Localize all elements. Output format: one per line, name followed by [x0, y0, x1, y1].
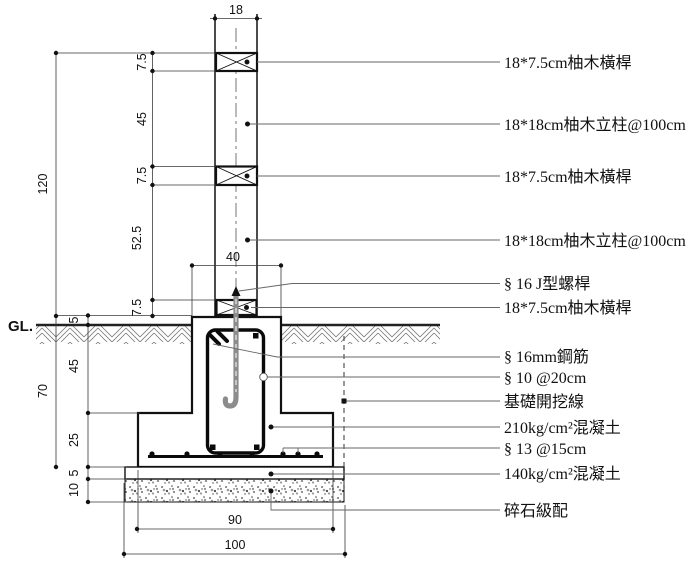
callout-labels: 18*7.5cm柚木橫桿 18*18cm柚木立柱@100cm 18*7.5cm柚… [504, 54, 686, 520]
callout-main-rebar: § 16mm鋼筋 [504, 348, 589, 366]
callout-concrete-140: 140kg/cm²混凝土 [504, 465, 621, 483]
ground-hatch-right [281, 326, 440, 344]
callout-stirrup: § 10 @20cm [504, 370, 587, 387]
callout-gravel: 碎石級配 [504, 502, 568, 520]
dim-rail-spacing-upper: 45 [135, 112, 149, 126]
callout-rail-top: 18*7.5cm柚木橫桿 [504, 54, 632, 72]
callout-post-lower: 18*18cm柚木立柱@100cm [504, 232, 686, 250]
dim-rail-top-h: 7.5 [135, 53, 149, 70]
gravel-layer [125, 479, 344, 502]
dim-lean-concrete-h: 5 [67, 469, 81, 476]
dim-total-above-gl: 120 [36, 174, 50, 195]
ground-level-label: GL. [8, 318, 33, 335]
callout-bottom-rebar: § 13 @15cm [504, 441, 587, 458]
dim-rail-spacing-lower: 52.5 [130, 226, 144, 250]
rebar-section-top-right [253, 333, 259, 339]
stirrup-leader-circle [260, 373, 268, 381]
ground-hatch-left [36, 326, 192, 344]
construction-detail-sheet: 18 40 90 100 7.5 45 7.5 52.5 7.5 120 70 … [0, 0, 700, 572]
dim-embed-total: 70 [36, 384, 50, 398]
timber-rails [216, 53, 257, 315]
dim-footing-h: 25 [67, 433, 81, 447]
callout-excavation-line: 基礎開挖線 [504, 393, 584, 411]
dim-post-width: 18 [229, 3, 243, 17]
dim-footing-width: 90 [228, 513, 242, 527]
callout-concrete-210: 210kg/cm²混凝土 [504, 419, 621, 437]
dim-rail-bottom-h: 7.5 [130, 299, 144, 316]
dim-pedestal-above-gl: 5 [67, 316, 81, 323]
dim-base-width: 100 [225, 538, 246, 552]
fence-post-foundation-drawing: 18 40 90 100 7.5 45 7.5 52.5 7.5 120 70 … [0, 0, 700, 572]
lean-concrete-slab [125, 467, 344, 479]
callout-post-upper: 18*18cm柚木立柱@100cm [504, 116, 686, 134]
dim-pedestal-width: 40 [226, 250, 240, 264]
rebar-section-bottom-right [254, 445, 260, 451]
callout-j-bolt: § 16 J型螺桿 [504, 275, 590, 293]
dim-pedestal-embed: 45 [67, 359, 81, 373]
dim-rail-mid-h: 7.5 [135, 167, 149, 184]
dim-gravel-h: 10 [67, 483, 81, 497]
rebar-section-bottom-left [210, 445, 216, 451]
callout-rail-mid: 18*7.5cm柚木橫桿 [504, 168, 632, 186]
callout-rail-bottom: 18*7.5cm柚木橫桿 [504, 299, 632, 317]
